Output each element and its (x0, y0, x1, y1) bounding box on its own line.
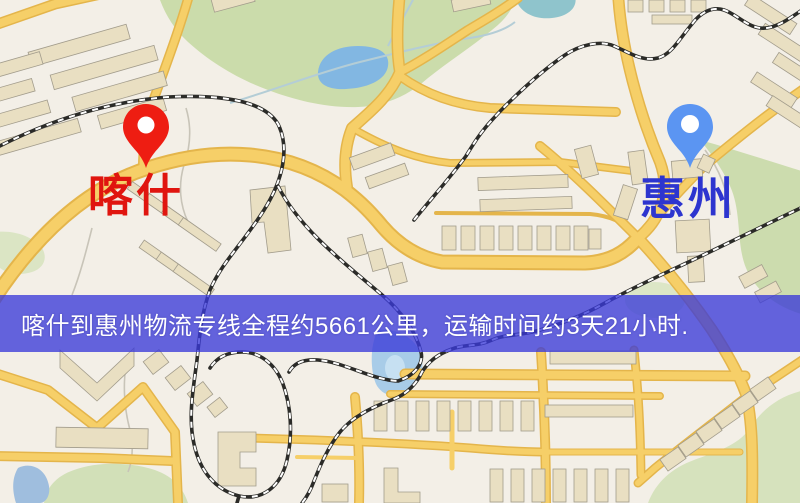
origin-pin-icon (123, 104, 169, 168)
route-info-text: 喀什到惠州物流专线全程约5661公里，运输时间约3天21小时. (0, 306, 689, 341)
destination-pin-icon (667, 104, 713, 168)
destination-pin-body (667, 104, 713, 168)
destination-pin-hole (681, 115, 699, 133)
logistics-route-map: 喀什 惠州 喀什到惠州物流专线全程约5661公里，运输时间约3天21小时. (0, 0, 800, 503)
route-info-banner: 喀什到惠州物流专线全程约5661公里，运输时间约3天21小时. (0, 295, 800, 352)
map-canvas (0, 0, 800, 503)
destination-city-label: 惠州 (640, 177, 736, 222)
origin-city-label: 喀什 (88, 174, 184, 219)
origin-pin-hole (138, 117, 155, 134)
origin-pin-body (123, 104, 169, 168)
